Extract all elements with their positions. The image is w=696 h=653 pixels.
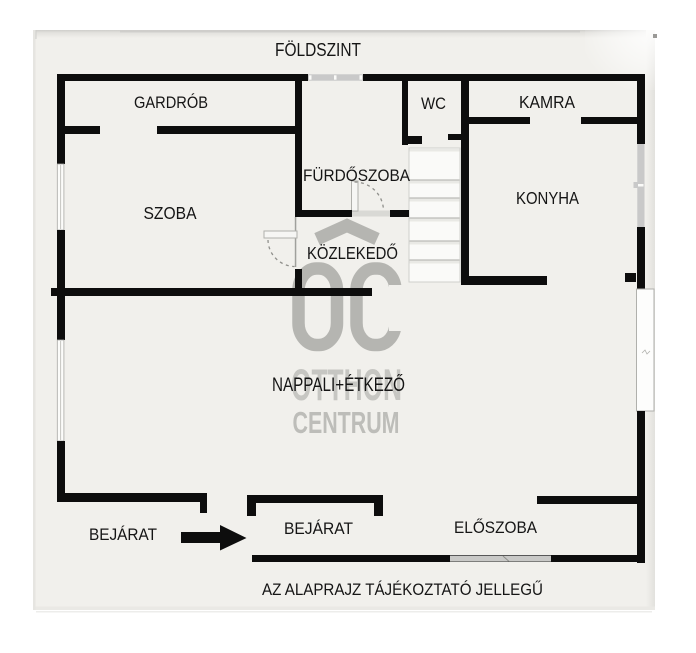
svg-text:GARDRÓB: GARDRÓB xyxy=(134,93,208,112)
svg-text:KAMRA: KAMRA xyxy=(519,92,575,112)
svg-text:SZOBA: SZOBA xyxy=(144,203,197,223)
svg-text:ELŐSZOBA: ELŐSZOBA xyxy=(454,518,538,537)
svg-text:AZ ALAPRAJZ TÁJÉKOZTATÓ JELLEG: AZ ALAPRAJZ TÁJÉKOZTATÓ JELLEGŰ xyxy=(262,580,543,599)
svg-text:NAPPALI+ÉTKEZŐ: NAPPALI+ÉTKEZŐ xyxy=(272,374,405,396)
svg-text:BEJÁRAT: BEJÁRAT xyxy=(284,519,353,538)
svg-text:KONYHA: KONYHA xyxy=(516,188,579,208)
svg-text:FÜRDŐSZOBA: FÜRDŐSZOBA xyxy=(303,166,411,185)
svg-text:BEJÁRAT: BEJÁRAT xyxy=(89,525,157,544)
svg-text:WC: WC xyxy=(421,94,446,113)
svg-text:KÖZLEKEDŐ: KÖZLEKEDŐ xyxy=(307,242,398,263)
svg-text:FÖLDSZINT: FÖLDSZINT xyxy=(275,40,361,60)
svg-text:CENTRUM: CENTRUM xyxy=(293,406,400,440)
